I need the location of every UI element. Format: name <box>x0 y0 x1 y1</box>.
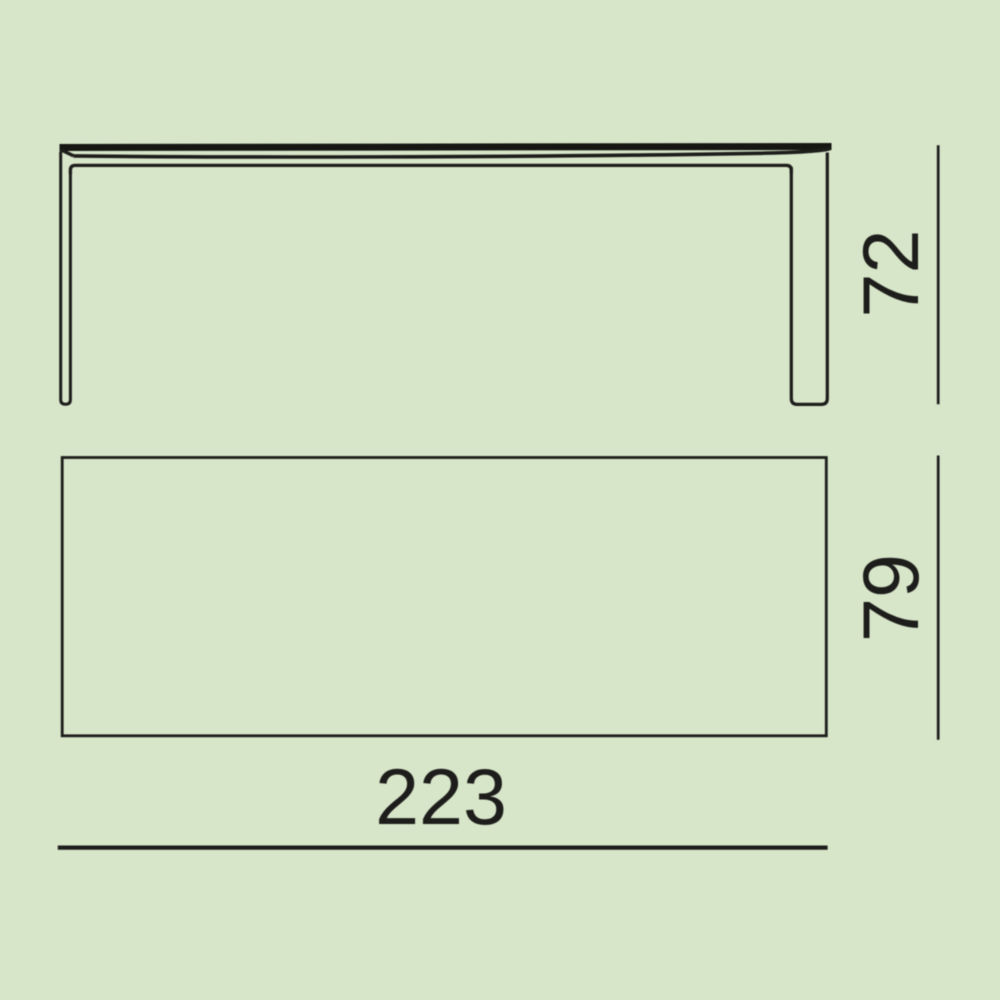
svg-text:79: 79 <box>846 554 935 642</box>
svg-text:72: 72 <box>846 230 935 318</box>
svg-text:223: 223 <box>375 752 507 841</box>
